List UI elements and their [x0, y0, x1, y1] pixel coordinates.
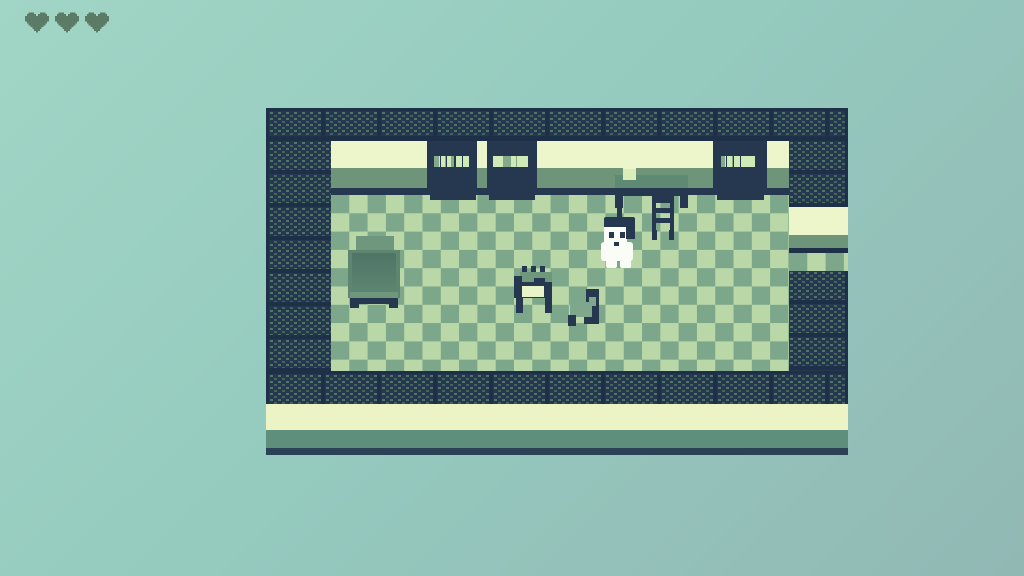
shelf-row — [434, 156, 469, 167]
game-screen[interactable] — [0, 0, 1024, 576]
shelf-row — [721, 156, 754, 167]
heart-icon — [55, 12, 79, 33]
doorway-wall — [789, 207, 848, 235]
heart-icon — [85, 12, 109, 33]
room — [266, 108, 848, 455]
player-character — [601, 205, 636, 268]
doorway-floor — [789, 253, 848, 271]
room-front-wall — [266, 404, 848, 430]
doorway-wainscot — [789, 235, 848, 248]
bookshelf-left-2 — [489, 152, 535, 200]
bed — [348, 236, 400, 308]
workbench — [514, 266, 554, 313]
chair — [568, 289, 600, 326]
desk-chair — [652, 196, 674, 240]
shelf-row — [493, 156, 528, 167]
mouth — [614, 242, 619, 246]
desk-lamp — [623, 160, 636, 180]
bookshelf-left-1 — [430, 152, 476, 200]
room-front-wainscot — [266, 430, 848, 448]
wall-bottom-tiles — [266, 371, 848, 404]
heart-icon — [25, 12, 49, 33]
eye — [620, 232, 625, 238]
eye — [609, 232, 614, 238]
wall-right-lower-tiles — [789, 271, 848, 371]
health-hearts — [25, 12, 109, 33]
wall-left-tiles — [266, 141, 331, 371]
bookshelf-right — [717, 152, 764, 200]
wall-top-tiles — [266, 108, 848, 141]
room-front-base — [266, 448, 848, 455]
wall-right-upper-tiles — [789, 141, 848, 207]
